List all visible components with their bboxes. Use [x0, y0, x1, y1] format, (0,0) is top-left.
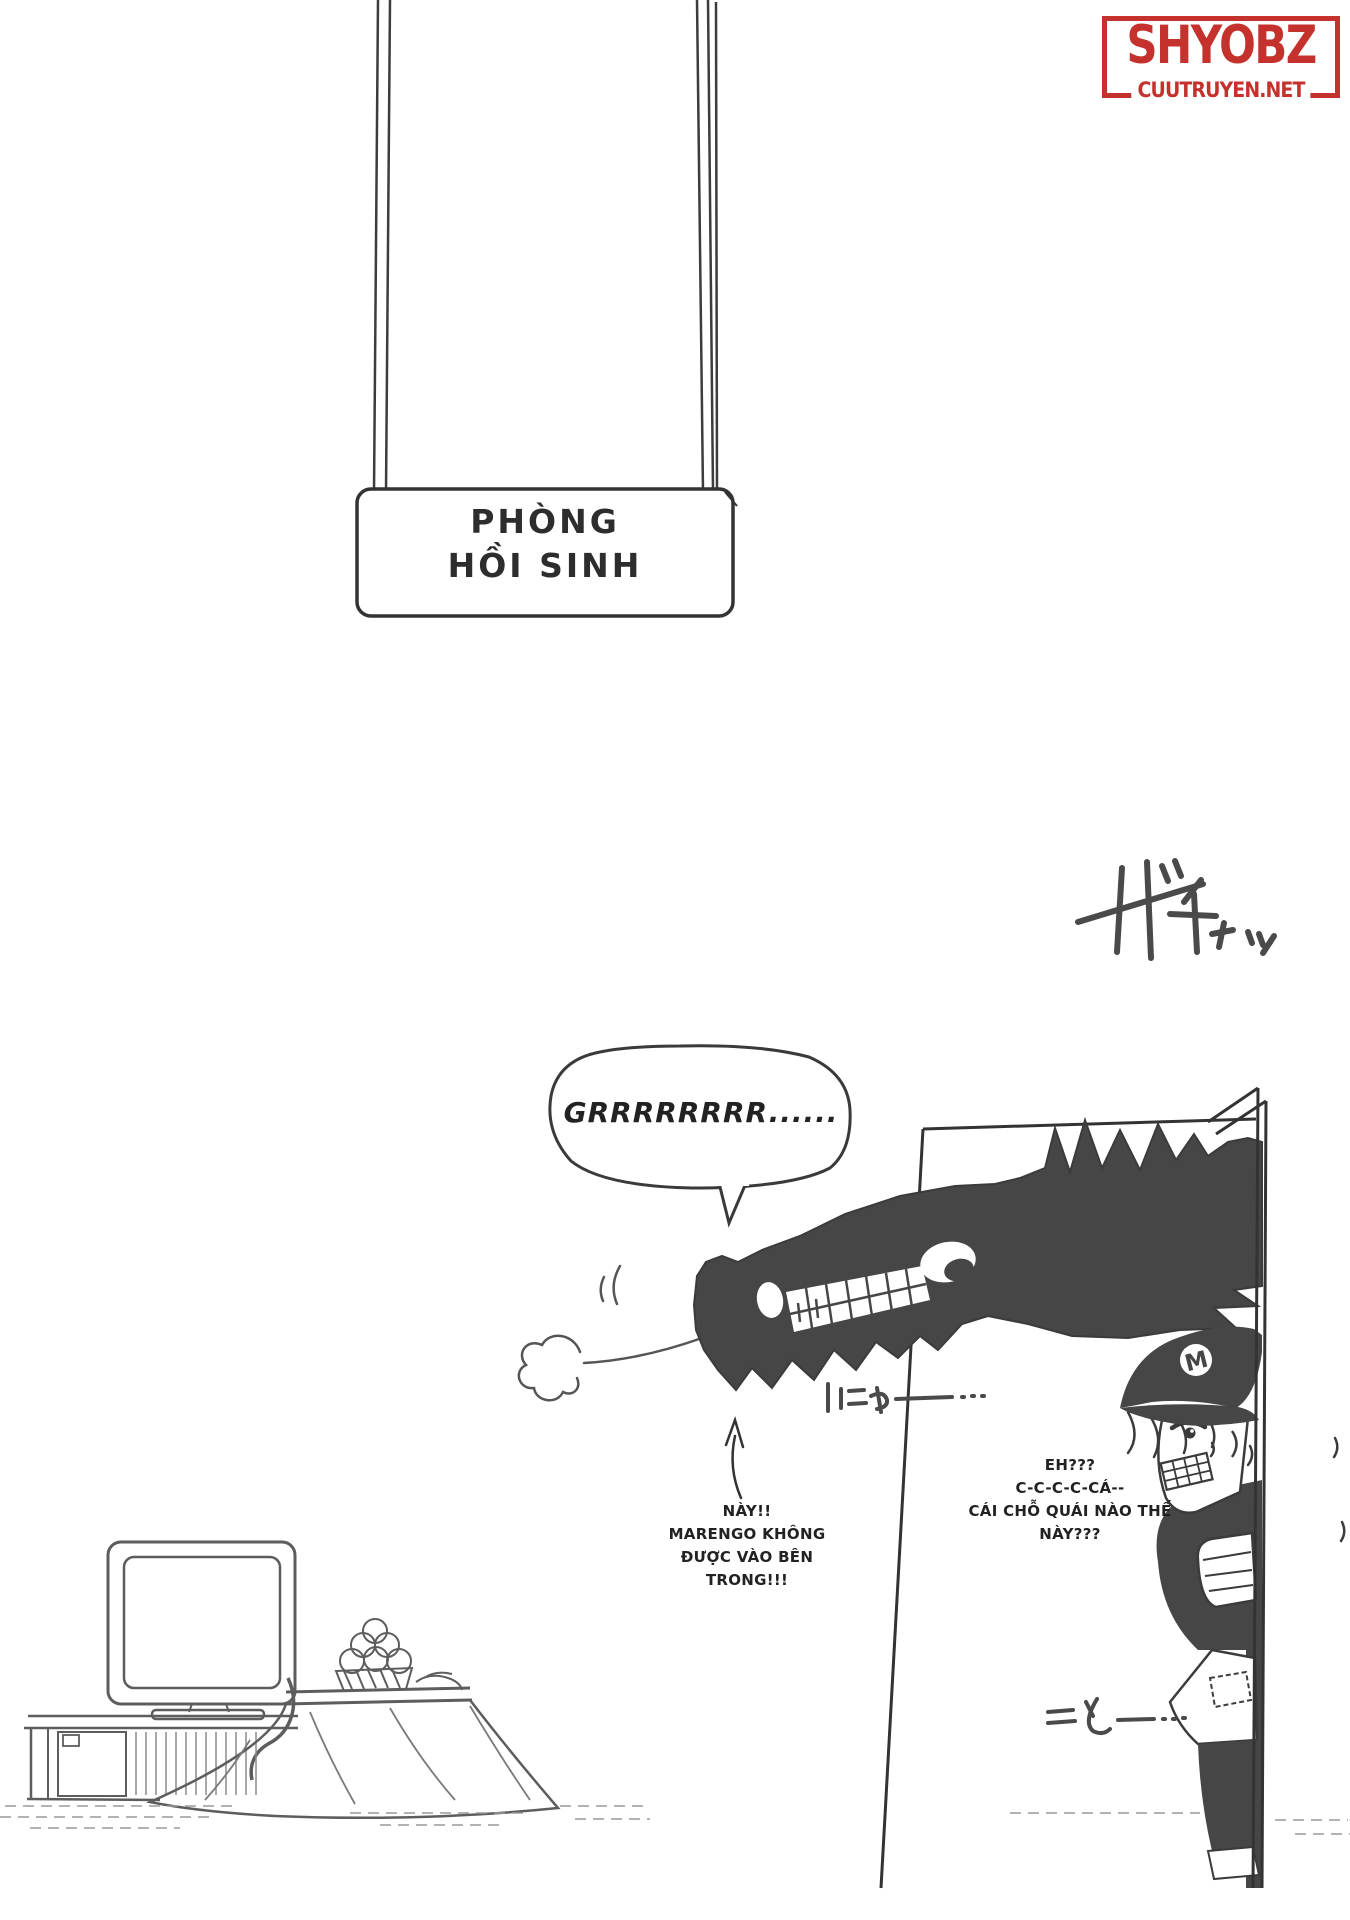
scared-line-4: NÀY???	[958, 1523, 1182, 1546]
character-boot	[1198, 1740, 1261, 1851]
sign-line-2: HỒI SINH	[357, 544, 733, 588]
warning-line-4: TRONG!!!	[638, 1569, 856, 1592]
motion-lines	[601, 1266, 620, 1304]
scared-caption: EH??? C-C-C-C-CÁ-- CÁI CHỖ QUÁI NÀO THẾ …	[958, 1454, 1182, 1546]
logo-title: SHYOBZ	[1123, 18, 1318, 74]
warning-line-1: NÀY!!	[638, 1500, 856, 1523]
tv-stand-sketch	[24, 1716, 298, 1800]
character-cap: M	[1120, 1327, 1262, 1426]
growl-text: GRRRRRRRR......	[558, 1096, 844, 1129]
scared-line-3: CÁI CHỖ QUÁI NÀO THẾ	[958, 1500, 1182, 1523]
sign-ropes	[374, 0, 717, 492]
manga-page: M	[0, 0, 1350, 1920]
warning-line-3: ĐƯỢC VÀO BÊN	[638, 1546, 856, 1569]
warning-line-2: MARENGO KHÔNG	[638, 1523, 856, 1546]
kotatsu-cloth	[150, 1700, 558, 1818]
fruit-bowl	[336, 1619, 412, 1691]
character-knee	[1170, 1650, 1257, 1744]
logo-site: CUUTRUYEN.NET	[1131, 78, 1310, 102]
character-shoe	[1208, 1847, 1259, 1879]
scared-line-1: EH???	[958, 1454, 1182, 1477]
breath-puff-icon	[519, 1336, 702, 1401]
character-hand	[1198, 1533, 1256, 1607]
sign-text: PHÒNG HỒI SINH	[357, 500, 733, 588]
sfx-peek	[1048, 1699, 1185, 1733]
sign-line-1: PHÒNG	[357, 500, 733, 544]
arrow-icon	[726, 1420, 743, 1498]
warning-caption: NÀY!! MARENGO KHÔNG ĐƯỢC VÀO BÊN TRONG!!…	[638, 1500, 856, 1592]
scared-line-2: C-C-C-C-CÁ--	[958, 1477, 1182, 1500]
scanlation-logo: SHYOBZ CUUTRUYEN.NET	[1102, 12, 1340, 90]
page-artwork: M	[0, 0, 1350, 1920]
sfx-grin	[828, 1384, 984, 1412]
speech-bubble	[550, 1046, 850, 1223]
peeking-character: M	[1120, 1327, 1344, 1888]
sfx-door-open	[1078, 861, 1274, 958]
